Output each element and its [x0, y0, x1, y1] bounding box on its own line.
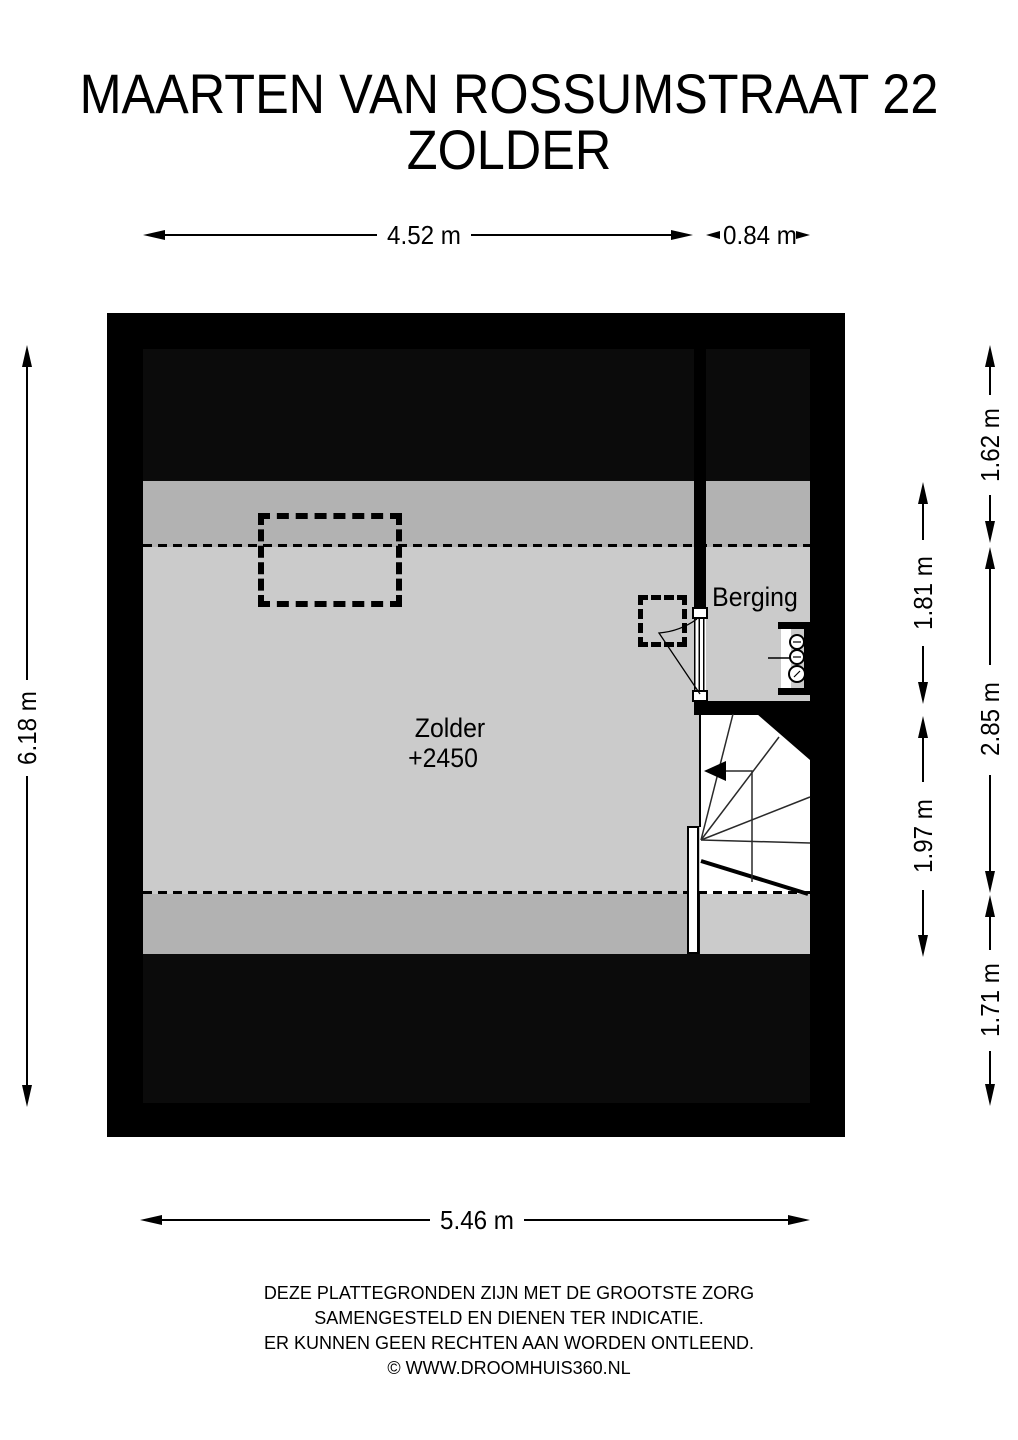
dim-right-bot-label: 1.71 m [977, 954, 1003, 1047]
dim-right-top-arrow-down [985, 521, 995, 543]
dim-top-main-arrow-left [143, 230, 165, 240]
stair-flight-edge [701, 861, 808, 894]
dim-berging-line-down [922, 646, 924, 682]
dim-left-arrow-bottom [22, 1085, 32, 1107]
dim-top-main-arrow-right [671, 230, 693, 240]
page-title-address: MAARTEN VAN ROSSUMSTRAAT 22 [51, 66, 967, 122]
dim-bottom-arrow-left [140, 1215, 162, 1225]
dim-right-mid-label: 2.85 m [977, 673, 1003, 766]
floorplan-drawing: Zolder +2450 Berging [107, 313, 845, 1137]
dim-top-right-label: 0.84 m [714, 222, 807, 248]
dim-berging-label: 1.81 m [910, 547, 936, 640]
dim-right-bot-arrow-up [985, 895, 995, 917]
dim-berging-arrow-down [918, 682, 928, 704]
dim-left-line-bottom [26, 776, 28, 1085]
dim-right-mid-line-up [989, 569, 991, 665]
disclaimer: DEZE PLATTEGRONDEN ZIJN MET DE GROOTSTE … [0, 1281, 1018, 1381]
dim-left-arrow-top [22, 345, 32, 367]
dim-bottom-label: 5.46 m [431, 1207, 524, 1233]
dim-stairs-arrow-up [918, 716, 928, 738]
dim-right-bot-line-up [989, 917, 991, 950]
dim-left-label: 6.18 m [14, 682, 40, 775]
disclaimer-line-1: DEZE PLATTEGRONDEN ZIJN MET DE GROOTSTE … [0, 1281, 1018, 1306]
disclaimer-line-2: SAMENGESTELD EN DIENEN TER INDICATIE. [0, 1306, 1018, 1331]
page-title: MAARTEN VAN ROSSUMSTRAAT 22 ZOLDER [51, 66, 967, 178]
dim-left-line-top [26, 367, 28, 680]
stair-direction-arrow [704, 761, 726, 781]
dim-right-bot-line-down [989, 1051, 991, 1084]
dim-bottom-line-left [162, 1219, 430, 1221]
dim-berging-line-up [922, 504, 924, 540]
berging-room-label: Berging [663, 582, 847, 612]
dim-right-mid-arrow-down [985, 871, 995, 893]
disclaimer-line-4: © WWW.DROOMHUIS360.NL [0, 1356, 1018, 1381]
dim-stairs-label: 1.97 m [910, 790, 936, 883]
dim-top-main-line-left [165, 234, 377, 236]
dim-top-right-arrow-right [796, 231, 810, 239]
dim-right-mid-line-down [989, 775, 991, 871]
zolder-room-label: Zolder [358, 713, 542, 743]
dim-bottom-line-right [524, 1219, 788, 1221]
stair-walkline [725, 771, 752, 882]
dim-berging-arrow-up [918, 482, 928, 504]
stair-corner-chamfer [757, 714, 810, 760]
page-title-floor: ZOLDER [51, 122, 967, 178]
dim-top-main-line-right [471, 234, 671, 236]
dim-right-top-line-up [989, 367, 991, 395]
dim-stairs-line-up [922, 738, 924, 782]
dim-top-main-label: 4.52 m [378, 222, 471, 248]
zolder-level-label: +2450 [351, 743, 535, 773]
floorplan-page: MAARTEN VAN ROSSUMSTRAAT 22 ZOLDER [0, 0, 1018, 1440]
dim-bottom-arrow-right [788, 1215, 810, 1225]
dim-right-top-arrow-up [985, 345, 995, 367]
dim-stairs-arrow-down [918, 935, 928, 957]
dim-stairs-line-down [922, 890, 924, 935]
disclaimer-line-3: ER KUNNEN GEEN RECHTEN AAN WORDEN ONTLEE… [0, 1331, 1018, 1356]
dim-right-top-label: 1.62 m [977, 399, 1003, 492]
dim-right-bot-arrow-down [985, 1084, 995, 1106]
dim-right-top-line-down [989, 495, 991, 521]
dim-right-mid-arrow-up [985, 547, 995, 569]
door-swing-arc [659, 619, 700, 694]
